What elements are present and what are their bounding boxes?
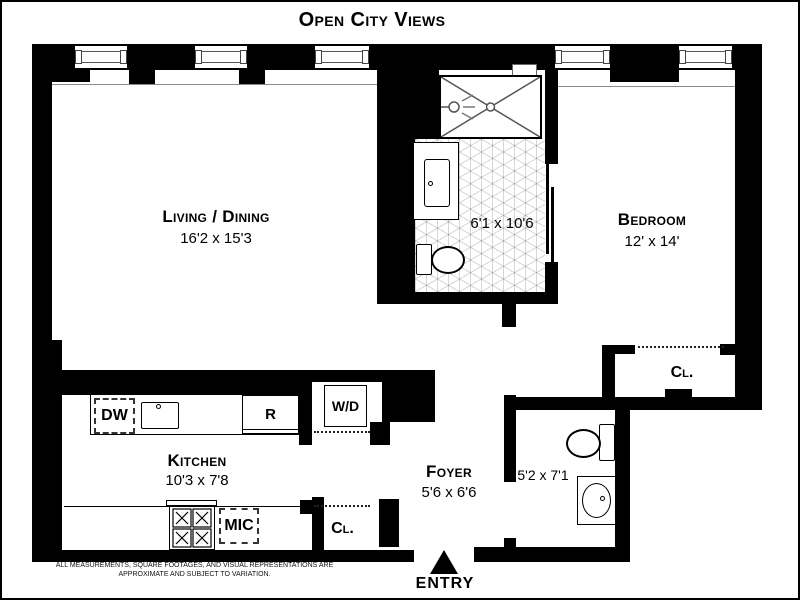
room-dims-kitchen: 10'3 x 7'8	[132, 472, 262, 489]
room-label-kitchen: Kitchen	[132, 451, 262, 471]
counter-edge	[90, 395, 91, 435]
wall-column	[610, 70, 679, 82]
closet-door-dotted-line	[314, 505, 370, 507]
faucet-dot	[156, 404, 161, 409]
sliding-door	[546, 164, 549, 254]
wall	[379, 499, 399, 547]
window	[679, 46, 732, 68]
sink-drain	[600, 496, 605, 501]
window-pane	[556, 51, 609, 63]
window-cap	[362, 50, 369, 64]
wall	[504, 538, 516, 550]
wall	[504, 397, 762, 410]
window	[195, 46, 247, 68]
wall	[615, 402, 630, 559]
disclaimer: ALL MEASUREMENTS, SQUARE FOOTAGES, AND V…	[42, 561, 347, 579]
toilet-bowl	[566, 429, 601, 458]
wall	[32, 44, 762, 70]
window-sill-line	[52, 84, 377, 85]
refrigerator-label: R	[265, 406, 276, 423]
wall-column	[129, 70, 155, 84]
sliding-door	[551, 187, 554, 265]
counter-edge	[243, 429, 298, 430]
window-cap	[240, 50, 247, 64]
sink-icon	[577, 476, 616, 525]
window-pane	[680, 51, 731, 63]
microwave-icon: MIC	[219, 508, 259, 544]
wall	[377, 292, 553, 304]
window-pane	[196, 51, 246, 63]
washer-dryer-icon: W/D	[324, 385, 367, 427]
stove-burners	[170, 507, 214, 549]
room-dims-bedroom: 12' x 14'	[562, 233, 742, 250]
shower-icon	[439, 75, 542, 139]
window-sill-line	[558, 86, 735, 87]
closet-label-bedroom: Cl.	[642, 364, 722, 382]
room-label-bedroom: Bedroom	[562, 210, 742, 230]
counter-edge	[90, 434, 299, 435]
plan-title: Open City Views	[252, 9, 492, 32]
dishwasher-label: DW	[101, 407, 128, 425]
stove-icon	[169, 506, 215, 550]
wall	[300, 500, 312, 514]
floor-plan: Open City Views	[0, 0, 800, 600]
window-cap	[679, 50, 686, 64]
entry-arrow-icon	[430, 550, 458, 574]
wall	[370, 422, 382, 445]
toilet-icon	[416, 244, 432, 275]
dishwasher-icon: DW	[94, 398, 135, 434]
window-pane	[76, 51, 126, 63]
closet-label-kitchen: Cl.	[314, 520, 371, 538]
window-cap	[75, 50, 82, 64]
window-cap	[315, 50, 322, 64]
window-cap	[555, 50, 562, 64]
closet-door-dotted-line	[638, 346, 724, 348]
wall-column	[52, 70, 90, 82]
window-cap	[120, 50, 127, 64]
wall	[377, 70, 407, 304]
shower-glyph	[441, 77, 540, 137]
window	[315, 46, 369, 68]
toilet-icon	[599, 424, 615, 461]
sink-drain	[428, 181, 433, 186]
bathroom2-dims: 5'2 x 7'1	[508, 467, 578, 483]
disclaimer-line1: ALL MEASUREMENTS, SQUARE FOOTAGES, AND V…	[42, 561, 347, 570]
bathroom-dims: 6'1 x 10'6	[457, 215, 547, 232]
wall	[474, 547, 630, 562]
disclaimer-line2: APPROXIMATE AND SUBJECT TO VARIATION.	[42, 570, 347, 579]
washer-dryer-label: W/D	[332, 398, 359, 414]
wall	[665, 389, 692, 401]
room-label-living-dining: Living / Dining	[126, 207, 306, 227]
window-cap	[195, 50, 202, 64]
wall	[382, 370, 435, 422]
microwave-label: MIC	[224, 517, 253, 535]
window-pane	[316, 51, 368, 63]
wall	[382, 422, 390, 445]
vanity-sink-icon	[413, 142, 459, 220]
window	[555, 46, 610, 68]
wall	[545, 262, 558, 304]
wall	[32, 44, 52, 340]
wall-column	[239, 70, 265, 84]
toilet-bowl	[431, 246, 465, 274]
room-dims-living-dining: 16'2 x 15'3	[126, 230, 306, 247]
wall	[52, 370, 312, 395]
entry-label: ENTRY	[405, 575, 485, 593]
sink-basin	[582, 483, 611, 518]
room-dims-foyer: 5'6 x 6'6	[399, 484, 499, 501]
wall	[602, 345, 635, 354]
window-cap	[603, 50, 610, 64]
room-label-foyer: Foyer	[399, 462, 499, 482]
window-cap	[725, 50, 732, 64]
wall	[407, 70, 439, 142]
wall	[502, 304, 516, 327]
window	[75, 46, 127, 68]
closet-door-dotted-line	[314, 431, 370, 433]
